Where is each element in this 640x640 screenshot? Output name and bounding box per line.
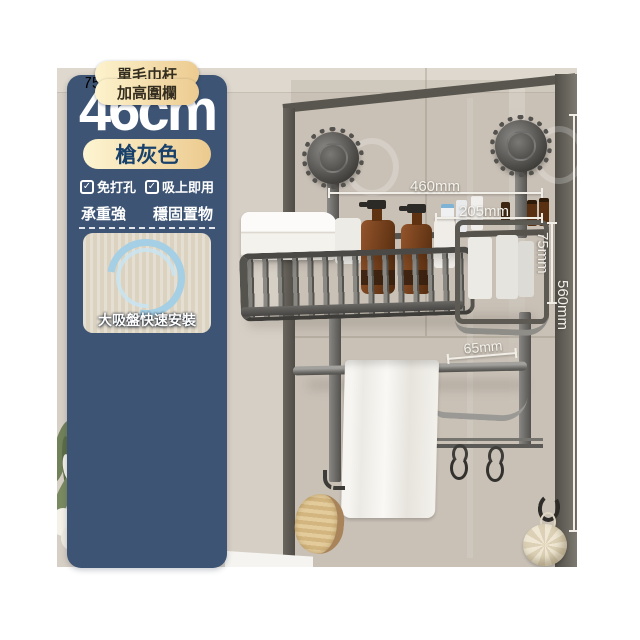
selling-point: 承重強 [81, 203, 126, 224]
s-hook [485, 446, 501, 482]
product-listing-image: 460mm 205mm 75mm 560mm 65mm 46cm 槍灰色 ✓ 免… [0, 0, 640, 640]
dimension-line-basket-height [551, 222, 553, 304]
white-bottle [468, 237, 492, 299]
feature-caption-pill: 加高圍欄 [95, 79, 199, 105]
suction-cup-right [495, 120, 547, 172]
dimension-line-total-height [573, 114, 575, 532]
color-name-pill: 槍灰色 [83, 139, 211, 169]
checkbox-icon: ✓ [80, 180, 94, 194]
selling-points: 承重強 穩固置物 [81, 203, 213, 224]
curved-front-rail [430, 392, 527, 423]
feature-image-suction: 大吸盤快速安裝 [83, 233, 211, 333]
dimension-label-basket-height: 75mm [534, 232, 551, 274]
feature-check-item: ✓ 吸上即用 [145, 177, 214, 196]
feature-check-label: 免打孔 [97, 177, 136, 196]
dimension-label-top-width: 460mm [395, 178, 475, 195]
suction-cup-illustration [123, 255, 171, 303]
end-hook-left [323, 470, 345, 490]
feature-check-item: ✓ 免打孔 [80, 177, 136, 196]
selling-point: 穩固置物 [153, 203, 213, 224]
bottle-neck [372, 209, 382, 221]
checkbox-icon: ✓ [145, 180, 159, 194]
feature-caption: 大吸盤快速安裝 [83, 310, 211, 330]
info-panel: 46cm 槍灰色 ✓ 免打孔 ✓ 吸上即用 承重強 穩固置物 [67, 75, 227, 568]
bottle-pump [367, 200, 386, 209]
feature-check-label: 吸上即用 [162, 177, 214, 196]
dashed-separator [79, 227, 215, 229]
white-bottle [496, 235, 518, 299]
feature-checklist: ✓ 免打孔 ✓ 吸上即用 [67, 177, 227, 196]
rack-rail-left [329, 310, 341, 482]
bottle-pump [407, 204, 426, 213]
bottle-neck [412, 213, 422, 225]
white-bottle [518, 241, 534, 297]
hanging-towel [341, 360, 439, 518]
glass-frame-left-bar [283, 108, 295, 567]
feature-card-raised-fence: 750mm 500mm 加高圍欄 [83, 75, 211, 105]
s-hook [449, 444, 465, 480]
loofah-sponge [523, 524, 567, 566]
dimension-label-inner-width: 205mm [451, 203, 517, 220]
suction-cup-left [307, 132, 359, 184]
dimension-label-total-height: 560mm [554, 280, 571, 330]
feature-card-suction-install: 大吸盤快速安裝 [83, 233, 211, 333]
